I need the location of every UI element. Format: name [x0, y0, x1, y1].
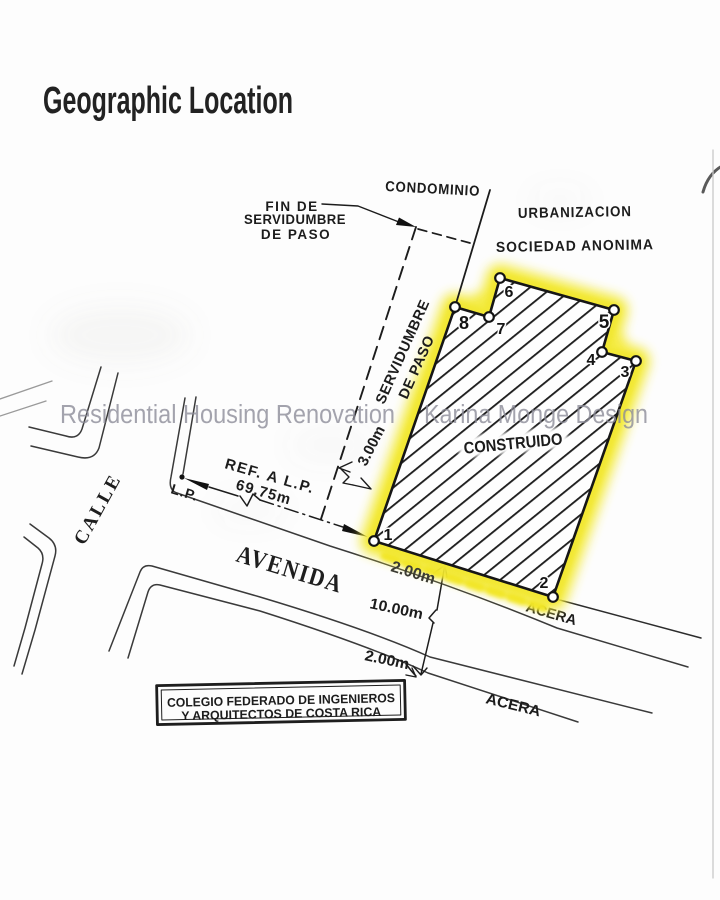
svg-text:DE PASO: DE PASO — [261, 227, 331, 242]
svg-text:8: 8 — [459, 313, 469, 333]
svg-text:3: 3 — [621, 364, 630, 381]
svg-text:SOCIEDAD ANONIMA: SOCIEDAD ANONIMA — [496, 237, 654, 256]
svg-text:Karina Monge Design: Karina Monge Design — [424, 401, 648, 429]
svg-text:Geographic Location: Geographic Location — [43, 80, 293, 122]
svg-text:URBANIZACION: URBANIZACION — [518, 204, 632, 222]
svg-text:7: 7 — [497, 321, 506, 338]
svg-text:2: 2 — [540, 575, 549, 592]
svg-text:4: 4 — [587, 352, 596, 369]
svg-text:SERVIDUMBRE: SERVIDUMBRE — [244, 212, 346, 227]
svg-text:6: 6 — [505, 284, 514, 301]
svg-text:5: 5 — [599, 312, 610, 333]
svg-text:Residential Housing Renovation: Residential Housing Renovation — [60, 401, 395, 429]
svg-text:1: 1 — [384, 527, 393, 544]
